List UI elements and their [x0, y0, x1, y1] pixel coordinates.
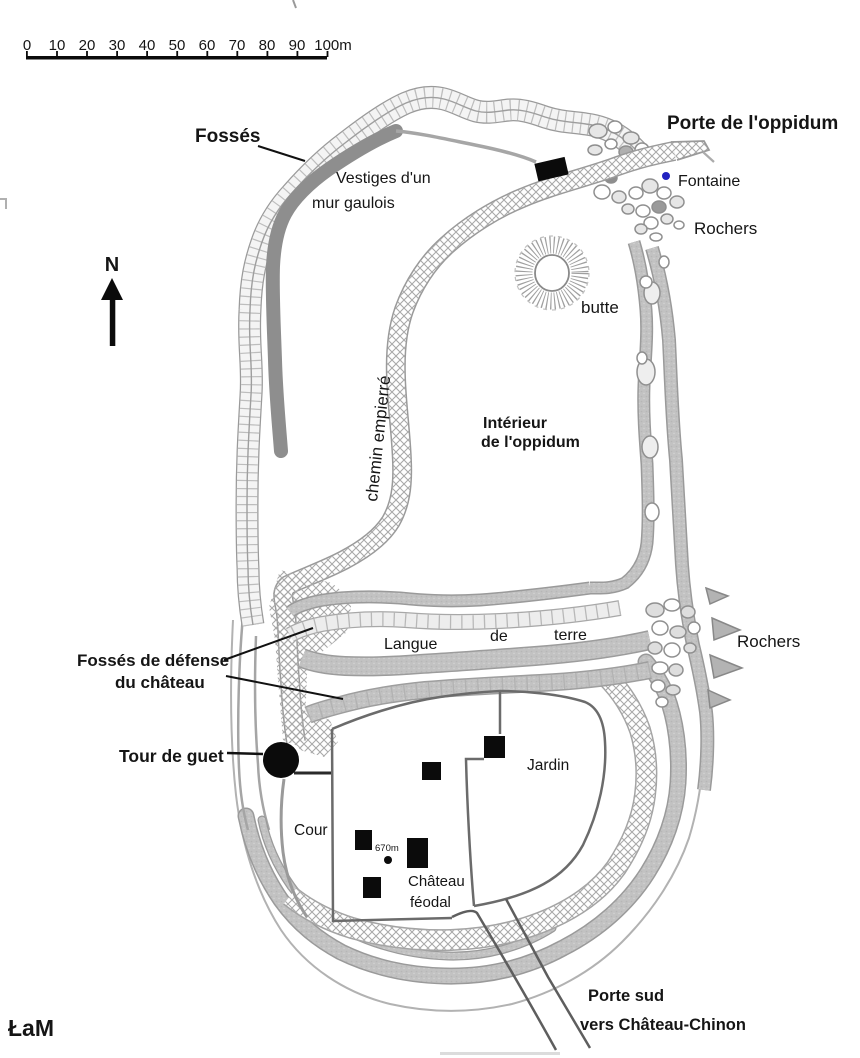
- svg-text:Fossés de défense: Fossés de défense: [77, 651, 229, 670]
- svg-text:40: 40: [139, 37, 156, 54]
- svg-text:Vestiges d'un: Vestiges d'un: [336, 170, 431, 187]
- svg-text:Porte sud: Porte sud: [588, 987, 664, 1005]
- svg-text:Porte de l'oppidum: Porte de l'oppidum: [667, 113, 838, 134]
- svg-text:Intérieur: Intérieur: [483, 415, 547, 432]
- svg-text:du château: du château: [115, 673, 205, 692]
- svg-text:10: 10: [49, 37, 66, 54]
- svg-text:50: 50: [169, 37, 186, 54]
- svg-text:30: 30: [109, 37, 126, 54]
- svg-text:Langue: Langue: [384, 636, 437, 653]
- svg-text:de: de: [490, 628, 508, 645]
- svg-text:de l'oppidum: de l'oppidum: [481, 434, 580, 451]
- svg-text:Rochers: Rochers: [737, 632, 800, 651]
- svg-text:Château: Château: [408, 873, 465, 890]
- svg-text:70: 70: [229, 37, 246, 54]
- svg-text:Jardin: Jardin: [527, 757, 569, 774]
- svg-text:féodal: féodal: [410, 894, 451, 911]
- svg-text:Fontaine: Fontaine: [678, 173, 740, 190]
- svg-text:Fossés: Fossés: [195, 126, 260, 147]
- svg-text:N: N: [105, 254, 119, 276]
- svg-text:80: 80: [259, 37, 276, 54]
- svg-text:670m: 670m: [375, 843, 399, 854]
- svg-text:butte: butte: [581, 298, 619, 317]
- svg-text:terre: terre: [554, 627, 587, 644]
- svg-text:Tour de guet: Tour de guet: [119, 746, 224, 766]
- svg-text:vers Château-Chinon: vers Château-Chinon: [580, 1016, 746, 1034]
- svg-text:Cour: Cour: [294, 822, 328, 839]
- svg-text:90: 90: [289, 37, 306, 54]
- svg-text:100m: 100m: [314, 37, 352, 54]
- svg-text:Rochers: Rochers: [694, 219, 757, 238]
- svg-text:mur gaulois: mur gaulois: [312, 195, 395, 212]
- svg-text:60: 60: [199, 37, 216, 54]
- svg-text:20: 20: [79, 37, 96, 54]
- svg-text:0: 0: [23, 37, 31, 54]
- svg-text:ŁaM: ŁaM: [8, 1015, 54, 1041]
